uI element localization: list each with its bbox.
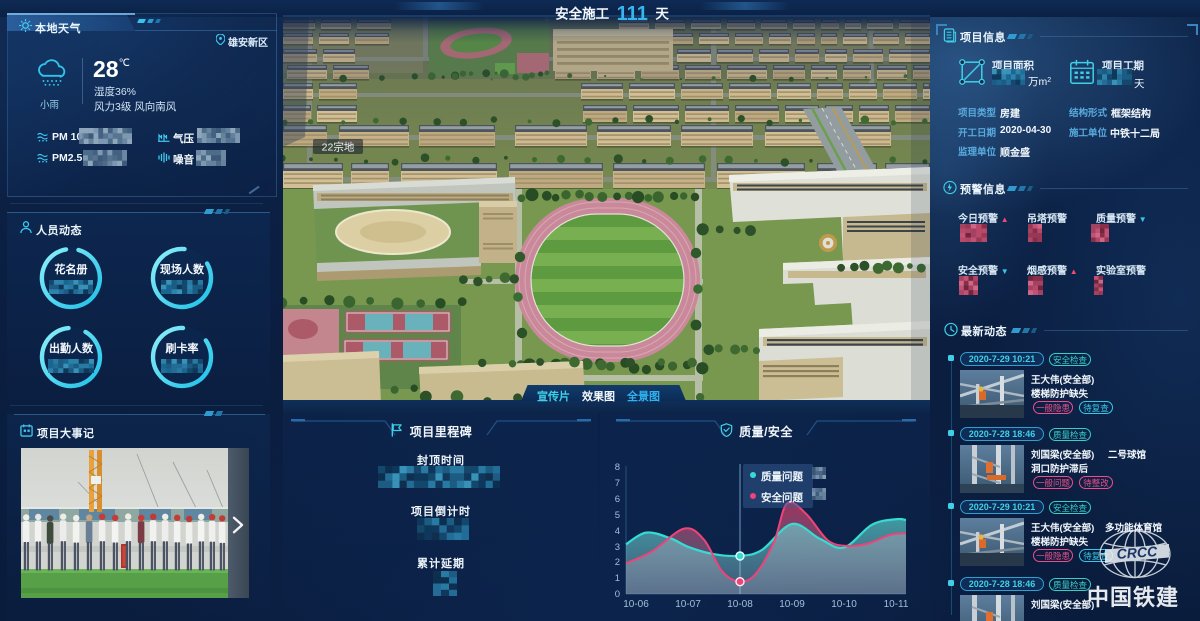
- svg-text:10-10: 10-10: [831, 599, 857, 610]
- svg-text:3: 3: [615, 542, 620, 553]
- svg-text:10-09: 10-09: [779, 599, 805, 610]
- svg-text:10-11: 10-11: [884, 599, 909, 610]
- svg-text:CRCC: CRCC: [1116, 543, 1158, 562]
- svg-text:5: 5: [615, 510, 620, 521]
- svg-text:10-06: 10-06: [623, 599, 649, 610]
- svg-text:8: 8: [615, 462, 620, 473]
- svg-text:10-07: 10-07: [675, 599, 701, 610]
- svg-text:7: 7: [615, 478, 620, 489]
- svg-text:1: 1: [615, 573, 620, 584]
- svg-text:22宗地: 22宗地: [322, 141, 355, 154]
- svg-text:10-08: 10-08: [727, 599, 753, 610]
- svg-text:6: 6: [615, 494, 620, 505]
- svg-text:2: 2: [615, 557, 620, 568]
- svg-text:0: 0: [615, 589, 620, 600]
- svg-text:4: 4: [615, 526, 620, 537]
